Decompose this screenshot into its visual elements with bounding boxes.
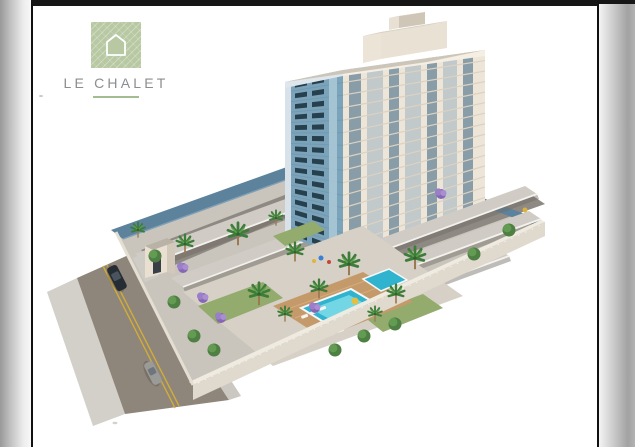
round-tree [468,248,481,261]
tower-window [295,147,307,152]
round-tree [208,344,221,357]
brochure-page: LE CHALET [0,0,635,447]
round-tree [358,330,371,343]
round-tree [149,250,162,263]
page-smudge [39,95,43,97]
tower-window [295,136,307,141]
tower-window [312,124,324,129]
round-tree [503,224,516,237]
logo-underline [93,96,139,98]
tower-stripe [329,72,337,255]
page-content: LE CHALET [31,0,599,447]
tower-window [295,125,307,130]
playground-blue [319,256,324,261]
tower-window [295,114,307,120]
rooftop-box-side [363,32,381,63]
balcony-strip [367,64,383,249]
umbrella-yellow [352,298,359,305]
page-edge-right [599,0,635,447]
tower-window [312,113,324,119]
page-edge-left [0,0,31,447]
round-tree [389,318,402,331]
round-tree [168,296,181,309]
bulkhead-side [389,16,399,30]
brand-logo: LE CHALET [56,22,176,98]
balcony-strip [405,59,421,236]
page-smudge [113,422,118,424]
round-tree [188,330,201,343]
playground-yellow [312,259,316,263]
playground-red [327,260,331,264]
round-tree [329,344,342,357]
balcony-strip [443,54,457,223]
tower-pilaster [285,81,291,236]
brand-name: LE CHALET [56,75,176,91]
tower-window [312,147,324,153]
tower-window [312,136,324,141]
logo-mark-icon [91,22,141,68]
yellow-shrub [523,208,528,213]
